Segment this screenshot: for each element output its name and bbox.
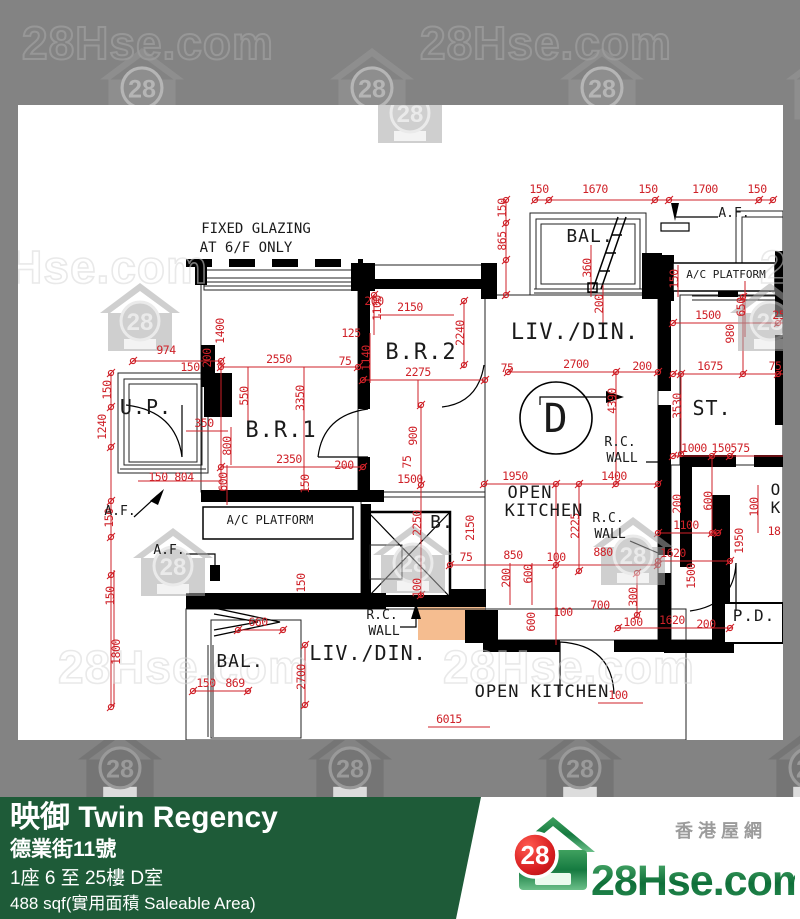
dim-tick (612, 368, 620, 376)
plan-label: A/C PLATFORM (227, 513, 314, 527)
plan-label: B.R.1 (245, 418, 316, 443)
dim-tick (107, 443, 115, 451)
dim-tick (677, 370, 685, 378)
plan-label: 1140 (359, 345, 373, 371)
plan-label: 6015 (436, 712, 462, 726)
plan-label: 3350 (293, 385, 307, 411)
dim-tick (531, 196, 539, 204)
svg-text:28: 28 (106, 755, 134, 783)
plan-label: 700 (590, 598, 610, 612)
logo-house-icon: 28 (511, 817, 595, 890)
svg-text:28: 28 (397, 105, 424, 128)
dim-tick (502, 219, 510, 227)
plan-label: 75 (339, 354, 352, 368)
dim-tick (107, 369, 115, 377)
dim-tick (129, 357, 137, 365)
plan-label: 100 (546, 550, 566, 564)
plan-label: 75 (769, 359, 782, 373)
plan-label: 1675 (697, 359, 723, 373)
plan-label: 200 (592, 294, 606, 314)
dim-tick (575, 480, 583, 488)
dim-tick (665, 196, 673, 204)
plan-label: 865 (495, 231, 509, 250)
dim-tick (480, 480, 488, 488)
floorplan-panel: 28282828282828Hse.com28Hse.com28Hse.com2… (18, 105, 783, 740)
plan-label: 1700 (692, 182, 718, 196)
plan-label: 2250 (410, 510, 424, 536)
plan-label: 100 (410, 578, 424, 598)
plan-label: 150 (529, 182, 549, 196)
dim-tick (301, 701, 309, 709)
plan-label: AT 6/F ONLY (200, 240, 293, 256)
plan-label: BAL. (216, 651, 263, 672)
plan-label: WALL (368, 624, 399, 639)
plan-label: 2150 (397, 300, 423, 314)
dim-tick (481, 376, 489, 384)
plan-label: 75 (400, 456, 414, 469)
plan-label: K (771, 498, 782, 517)
plan-label: 250 (772, 308, 783, 322)
dim-tick (552, 480, 560, 488)
plan-label: 100 (623, 615, 643, 629)
plan-label: 200 (334, 458, 354, 472)
plan-label: A/C PLATFORM (686, 268, 766, 281)
plan-label: 650 (734, 297, 748, 317)
svg-text:28: 28 (160, 554, 187, 581)
plan-label: 575 (730, 441, 749, 455)
plan-label: LIV./DIN. (309, 641, 426, 665)
site-logo[interactable]: 28 28Hse.com 香港屋網 (495, 805, 795, 919)
dim-tick (217, 463, 225, 471)
watermark-text: 28Hse.com (58, 641, 310, 693)
property-address: 德業街11號 (10, 835, 500, 865)
dim-tick (460, 361, 468, 369)
dim-tick (107, 703, 115, 711)
plan-label: 600 (216, 472, 230, 492)
watermark-house-icon: 28 (100, 283, 180, 351)
plan-label: 150 (294, 573, 308, 593)
plan-label: 150 (148, 470, 168, 484)
plan-label: 1400 (213, 318, 227, 344)
property-info-banner: 映御 Twin Regency 德業街11號 1座 6 至 25樓 D室 488… (0, 797, 500, 919)
dim-tick (502, 291, 510, 299)
watermark-text: 28Hse.com (420, 16, 672, 70)
watermark-house-icon: 28 (133, 528, 213, 596)
plan-label: 1620 (659, 613, 685, 627)
svg-text:28: 28 (796, 755, 800, 783)
plan-label: 150 (196, 676, 216, 690)
plan-label: 4390 (605, 388, 619, 414)
plan-label: U.P. (120, 395, 172, 419)
plan-label: 1950 (732, 528, 746, 554)
plan-label: 150 (638, 182, 658, 196)
logo-badge: 28 (521, 840, 550, 870)
plan-label: FIXED GLAZING (201, 221, 311, 237)
plan-label: WALL (594, 527, 625, 542)
plan-label: R.C. (592, 511, 623, 526)
plan-label: 600 (701, 491, 715, 511)
plan-label: 880 (593, 545, 613, 559)
plan-label: R.C. (604, 435, 635, 450)
watermark-text: 28Hse.com (760, 241, 783, 293)
plan-label: OPEN KITCHEN (475, 682, 610, 702)
watermark-text: 28Hse.com (18, 241, 208, 293)
dim-tick (460, 297, 468, 305)
logo-tagline: 香港屋網 (674, 820, 767, 841)
plan-label: 1500 (695, 308, 721, 322)
svg-text:28: 28 (128, 75, 156, 103)
plan-label: 100 (747, 497, 761, 517)
property-area: 488 sqf(實用面積 Saleable Area) (10, 892, 500, 916)
plan-label: 974 (156, 343, 176, 357)
plan-label: R.C. (366, 608, 397, 623)
plan-label: A.F. (718, 206, 749, 221)
plan-label: 800 (220, 436, 234, 456)
dim-tick (107, 533, 115, 541)
plan-label: 2150 (463, 515, 477, 541)
plan-label: 150 (667, 269, 681, 289)
svg-text:28: 28 (400, 551, 427, 578)
plan-label: 1950 (502, 469, 528, 483)
plan-label: 600 (521, 564, 535, 584)
plan-label: 804 (174, 470, 194, 484)
dim-tick (502, 256, 510, 264)
plan-label: LIV./DIN. (511, 320, 639, 345)
logo-site-name: 28Hse.com (591, 857, 795, 905)
dim-tick (755, 196, 763, 204)
plan-label: D (543, 396, 568, 442)
svg-text:28: 28 (336, 755, 364, 783)
svg-text:28: 28 (620, 543, 647, 570)
plan-label: 980 (723, 324, 737, 344)
plan-label: 75 (501, 361, 514, 375)
plan-label: 2275 (405, 365, 431, 379)
plan-label: 200 (632, 359, 652, 373)
plan-label: P.D. (733, 606, 776, 625)
plan-label: B.R.2 (385, 340, 456, 365)
dim-tick (545, 196, 553, 204)
plan-label: 360 (580, 258, 594, 278)
plan-label: 850 (503, 548, 523, 562)
dim-tick (614, 624, 622, 632)
svg-text:28: 28 (127, 309, 154, 336)
dim-tick (739, 370, 747, 378)
watermark-house-icon: 28 (786, 48, 800, 119)
plan-label: 1000 (681, 441, 707, 455)
plan-label: 150 (711, 441, 731, 455)
plan-label: 2700 (563, 357, 589, 371)
plan-label: 1500 (684, 563, 698, 589)
plan-label: WALL (606, 451, 637, 466)
plan-label: ST. (692, 396, 731, 420)
plan-label: 3530 (670, 393, 684, 419)
plan-label: 200 (499, 568, 513, 588)
floorplan-drawing: 28282828282828Hse.com28Hse.com28Hse.com2… (18, 105, 783, 740)
plan-label: 150 (103, 586, 117, 606)
svg-text:28: 28 (358, 75, 386, 103)
plan-label: 600 (524, 612, 538, 632)
plan-label: 200 (200, 348, 214, 368)
plan-label: 350 (194, 416, 214, 430)
floorplan-page: 28Hse.com 28Hse.com 2828282828282828 (0, 0, 800, 919)
plan-label: 2350 (276, 452, 302, 466)
dim-tick (107, 403, 115, 411)
plan-label: 2550 (266, 352, 292, 366)
plan-label: A.F. (153, 543, 184, 558)
plan-label: 1400 (601, 469, 627, 483)
plan-label: 550 (237, 386, 251, 406)
plan-label: 200 (670, 494, 684, 514)
dim-tick (446, 561, 454, 569)
plan-label: KITCHEN (505, 501, 584, 521)
plan-label: 150 (180, 360, 200, 374)
plan-label: 150 (495, 198, 509, 218)
plan-label: 100 (608, 688, 628, 702)
plan-label: 1800 (109, 639, 123, 665)
plan-label: 150 (100, 380, 114, 400)
dim-tick (651, 196, 659, 204)
plan-label: 150 (747, 182, 767, 196)
svg-text:28: 28 (566, 755, 594, 783)
watermark-text: 28Hse.com (22, 16, 274, 70)
watermark-house-icon: 28 (370, 105, 450, 143)
plan-label: 1620 (660, 546, 686, 560)
plan-label: 100 (553, 605, 573, 619)
plan-label: 1100 (673, 518, 699, 532)
plan-label: 18 (768, 524, 781, 538)
plan-label: B. (430, 512, 454, 533)
dim-tick (234, 626, 242, 634)
plan-label: OPEN (508, 483, 553, 503)
dim-tick (575, 567, 583, 575)
property-title: 映御 Twin Regency (10, 801, 500, 835)
plan-label: 900 (406, 426, 420, 446)
plan-label: 869 (225, 676, 245, 690)
plan-label: 300 (626, 587, 640, 607)
plan-label: 1500 (397, 472, 423, 486)
plan-label: 1100 (370, 295, 384, 321)
svg-text:28: 28 (588, 75, 616, 103)
dim-tick (769, 196, 777, 204)
plan-label: 150 (298, 474, 312, 494)
plan-label: 125 (341, 326, 360, 340)
plan-label: 200 (696, 617, 716, 631)
plan-label: 660 (248, 615, 268, 629)
dim-tick (279, 626, 287, 634)
plan-label: BAL. (566, 226, 613, 247)
plan-label: O (771, 480, 782, 499)
plan-label: 1240 (95, 414, 109, 440)
property-floor-unit: 1座 6 至 25樓 D室 (10, 865, 500, 892)
plan-label: 2700 (294, 664, 308, 690)
plan-label: 1670 (582, 182, 608, 196)
plan-label: 75 (460, 550, 473, 564)
plan-label: A.F. (104, 504, 135, 519)
